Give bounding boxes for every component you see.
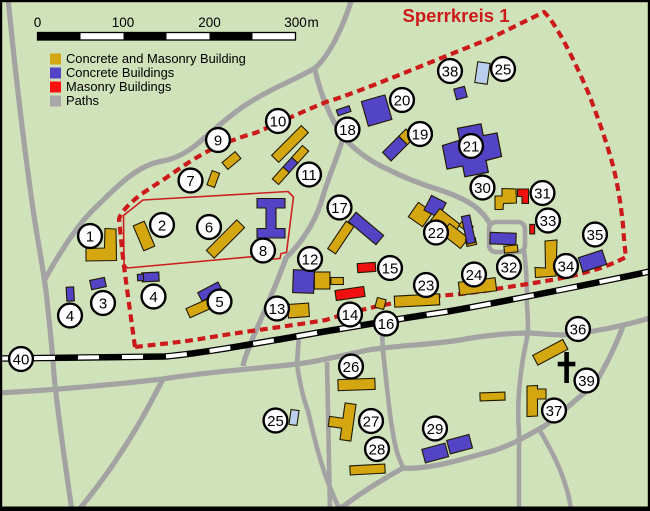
svg-text:37: 37 xyxy=(546,403,563,420)
svg-text:10: 10 xyxy=(270,113,287,130)
svg-text:15: 15 xyxy=(382,260,399,277)
svg-text:9: 9 xyxy=(214,132,222,149)
svg-text:40: 40 xyxy=(13,351,30,368)
svg-text:26: 26 xyxy=(343,359,360,376)
svg-text:11: 11 xyxy=(301,167,317,184)
svg-text:39: 39 xyxy=(578,373,595,390)
svg-text:34: 34 xyxy=(558,258,575,275)
svg-text:12: 12 xyxy=(302,251,319,268)
svg-text:32: 32 xyxy=(501,259,518,276)
svg-text:Concrete Buildings: Concrete Buildings xyxy=(66,65,174,80)
svg-text:7: 7 xyxy=(186,173,194,190)
svg-text:30: 30 xyxy=(474,180,491,197)
svg-text:2: 2 xyxy=(158,217,166,234)
svg-text:0: 0 xyxy=(34,15,42,30)
svg-text:4: 4 xyxy=(66,308,74,325)
svg-text:31: 31 xyxy=(534,185,551,202)
svg-text:28: 28 xyxy=(369,441,386,458)
svg-text:1: 1 xyxy=(86,228,94,245)
svg-text:100: 100 xyxy=(112,15,135,30)
svg-text:3: 3 xyxy=(99,295,107,312)
svg-text:20: 20 xyxy=(394,92,411,109)
svg-text:16: 16 xyxy=(378,316,395,333)
svg-text:29: 29 xyxy=(427,421,444,438)
svg-text:27: 27 xyxy=(363,413,380,430)
svg-text:Concrete and Masonry Building: Concrete and Masonry Building xyxy=(66,51,246,66)
svg-text:Paths: Paths xyxy=(66,93,99,108)
svg-text:23: 23 xyxy=(418,277,435,294)
svg-text:36: 36 xyxy=(570,321,587,338)
svg-text:17: 17 xyxy=(331,200,348,217)
svg-text:24: 24 xyxy=(466,267,483,284)
svg-text:4: 4 xyxy=(149,289,157,306)
svg-text:19: 19 xyxy=(412,126,429,143)
svg-text:18: 18 xyxy=(339,122,356,139)
svg-text:5: 5 xyxy=(215,294,223,311)
svg-text:35: 35 xyxy=(587,227,604,244)
svg-text:25: 25 xyxy=(267,413,284,430)
svg-text:13: 13 xyxy=(269,301,286,318)
svg-text:Sperrkreis 1: Sperrkreis 1 xyxy=(403,5,510,26)
svg-text:14: 14 xyxy=(342,307,359,324)
svg-text:25: 25 xyxy=(495,61,512,78)
svg-text:21: 21 xyxy=(463,138,480,155)
svg-text:22: 22 xyxy=(428,225,445,242)
svg-text:38: 38 xyxy=(442,63,459,80)
svg-text:6: 6 xyxy=(205,219,213,236)
svg-text:8: 8 xyxy=(259,243,267,260)
svg-text:Masonry Buildings: Masonry Buildings xyxy=(66,79,171,94)
svg-text:200: 200 xyxy=(198,15,221,30)
svg-text:m: m xyxy=(308,15,319,30)
svg-text:33: 33 xyxy=(540,213,557,230)
svg-text:300: 300 xyxy=(284,15,307,30)
